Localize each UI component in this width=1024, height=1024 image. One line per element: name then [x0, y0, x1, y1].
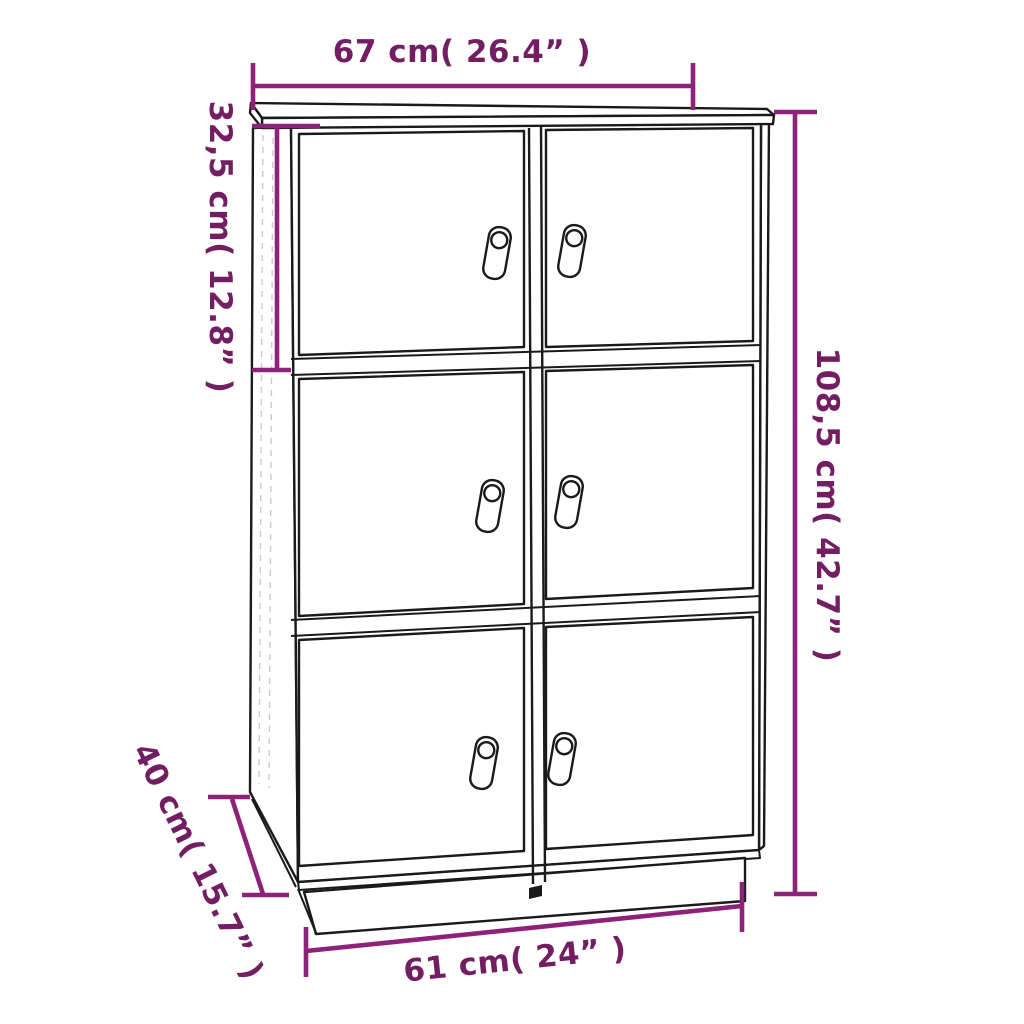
diagram-canvas: 67 cm( 26.4” ) 32,5 cm( 12.8” ) 108,5 cm… — [0, 0, 1024, 1024]
door-bottom-right — [546, 617, 753, 849]
cabinet-left-side-panel — [250, 127, 298, 882]
cabinet-line-art — [250, 103, 774, 934]
product-dimension-diagram: 67 cm( 26.4” ) 32,5 cm( 12.8” ) 108,5 cm… — [0, 0, 1024, 1024]
dimension-total-height-label: 108,5 cm( 42.7” ) — [809, 348, 845, 663]
dimension-top-width: 67 cm( 26.4” ) — [253, 34, 693, 110]
dimension-total-height: 108,5 cm( 42.7” ) — [774, 112, 845, 894]
dimension-upper-height-label: 32,5 cm( 12.8” ) — [202, 101, 238, 394]
dimension-top-width-label: 67 cm( 26.4” ) — [333, 34, 591, 70]
